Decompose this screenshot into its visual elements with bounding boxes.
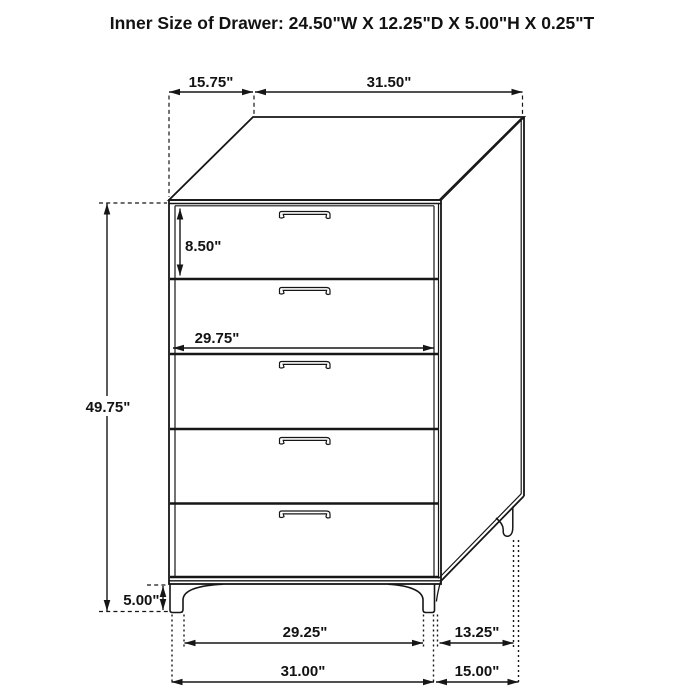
drawer-handle bbox=[280, 288, 331, 295]
drawer-handle bbox=[280, 362, 331, 369]
front-right-leg-side-flare bbox=[436, 582, 440, 602]
dim-label-leg-height: 5.00" bbox=[123, 592, 159, 609]
side-bottom-diagonal bbox=[441, 496, 524, 581]
dim-label-top-depth: 15.75" bbox=[189, 74, 234, 91]
top-panel bbox=[169, 117, 524, 200]
front-right-leg bbox=[388, 584, 435, 613]
dim-label-top-width: 31.50" bbox=[367, 74, 412, 91]
furniture-dimension-diagram: Inner Size of Drawer: 24.50"W X 12.25"D … bbox=[0, 0, 700, 700]
top-panel-right-thickness bbox=[439, 119, 522, 201]
drawer-handle bbox=[280, 511, 331, 518]
dim-label-overall-depth: 15.00" bbox=[455, 663, 500, 680]
chest-drawing bbox=[169, 117, 524, 613]
dim-label-drawer-width: 29.75" bbox=[195, 330, 240, 347]
diagram-title: Inner Size of Drawer: 24.50"W X 12.25"D … bbox=[110, 13, 595, 33]
dim-label-overall-height: 49.75" bbox=[86, 399, 131, 416]
front-left-leg bbox=[170, 584, 223, 613]
dim-label-drawer-height: 8.50" bbox=[185, 238, 221, 255]
diagram-canvas: Inner Size of Drawer: 24.50"W X 12.25"D … bbox=[0, 0, 700, 700]
drawer-handle bbox=[280, 212, 331, 219]
front-face bbox=[169, 200, 441, 584]
drawer-handle bbox=[280, 438, 331, 445]
dim-label-front-leg-span: 29.25" bbox=[283, 624, 328, 641]
dim-label-overall-width: 31.00" bbox=[281, 663, 326, 680]
dim-label-side-leg-span: 13.25" bbox=[455, 624, 500, 641]
